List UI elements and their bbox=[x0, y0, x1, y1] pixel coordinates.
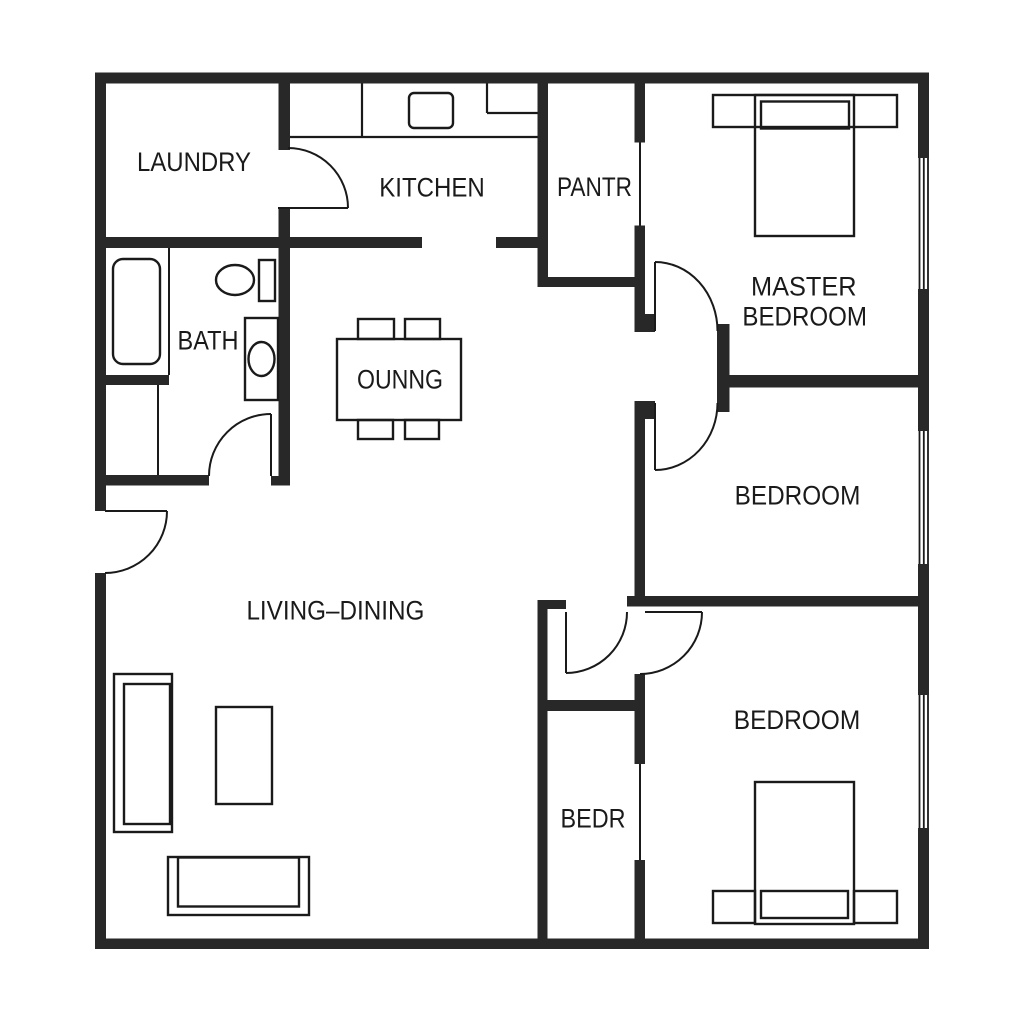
svg-text:PANTR: PANTR bbox=[557, 172, 632, 202]
svg-text:BEDROOM: BEDROOM bbox=[735, 480, 861, 510]
svg-text:LAUNDRY: LAUNDRY bbox=[137, 147, 251, 177]
svg-text:BEDROOM: BEDROOM bbox=[734, 705, 861, 735]
svg-text:BEDR: BEDR bbox=[561, 803, 626, 833]
svg-text:MASTER: MASTER bbox=[751, 272, 857, 302]
svg-text:OUNNG: OUNNG bbox=[357, 364, 443, 394]
svg-text:BATH: BATH bbox=[178, 326, 239, 356]
svg-text:LIVING–DINING: LIVING–DINING bbox=[246, 596, 424, 626]
svg-text:KITCHEN: KITCHEN bbox=[379, 172, 485, 202]
svg-text:BEDROOM: BEDROOM bbox=[742, 301, 867, 331]
